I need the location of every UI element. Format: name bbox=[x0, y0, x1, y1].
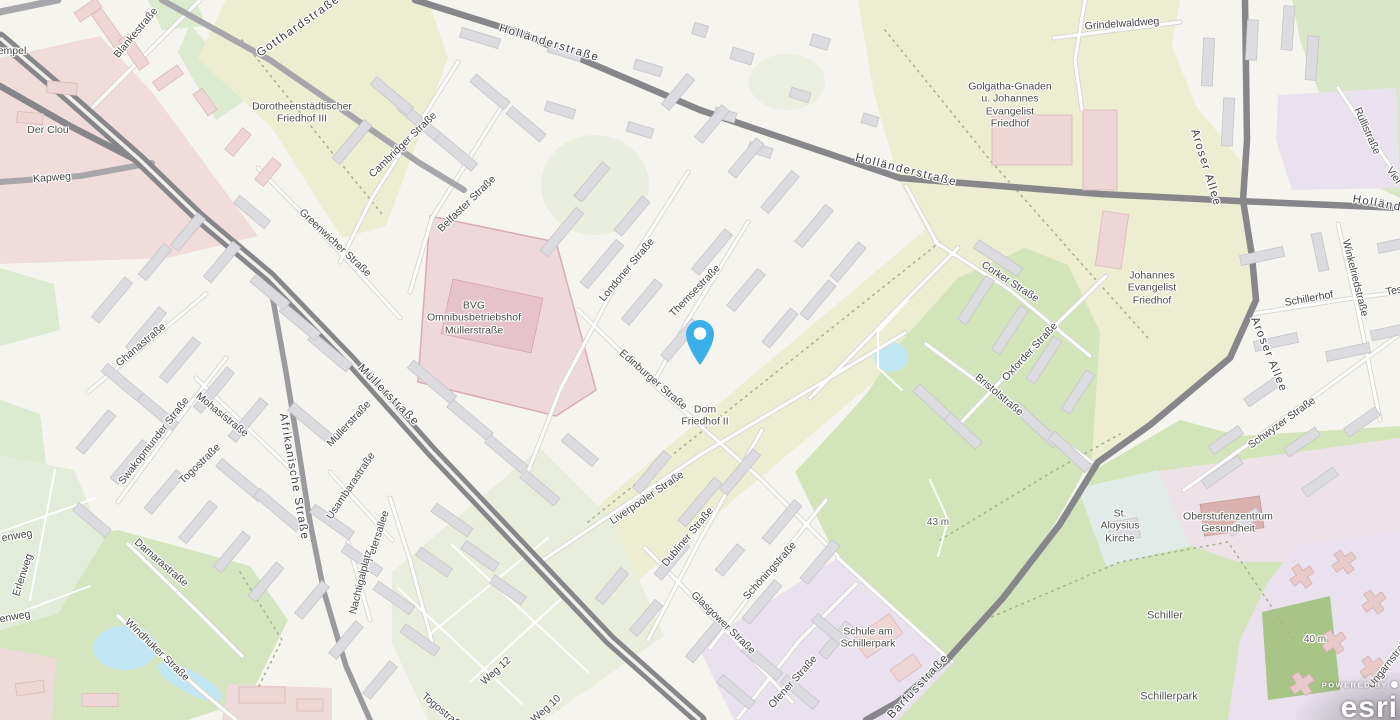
building bbox=[1083, 110, 1117, 190]
map-viewport[interactable]: empelBlankestraßeGotthardstraßeHolländer… bbox=[0, 0, 1400, 720]
building bbox=[992, 115, 1072, 165]
pond-west bbox=[93, 626, 157, 670]
building bbox=[47, 81, 78, 96]
building bbox=[17, 111, 44, 124]
location-pin-icon[interactable] bbox=[679, 313, 721, 367]
building bbox=[297, 699, 323, 711]
building bbox=[1221, 98, 1234, 147]
building bbox=[1201, 38, 1214, 87]
zone-purple-northeast bbox=[1276, 88, 1400, 190]
building bbox=[239, 687, 285, 703]
building bbox=[82, 694, 118, 707]
building bbox=[1245, 20, 1258, 61]
